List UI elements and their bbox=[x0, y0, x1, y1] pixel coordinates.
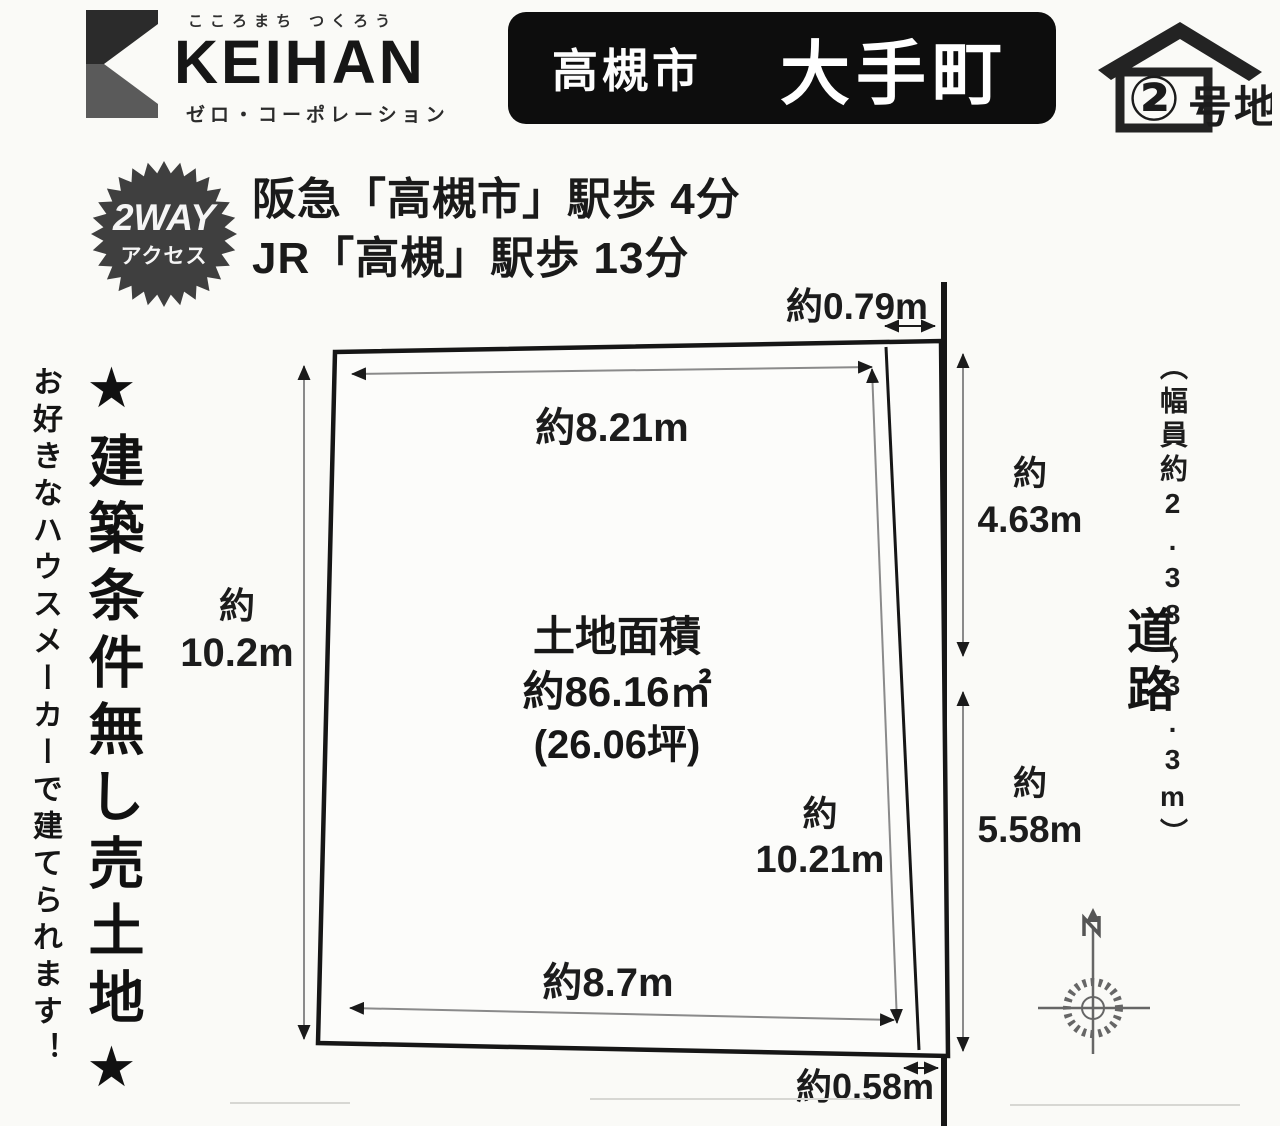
dim-label-right-upper-prefix: 約 bbox=[965, 452, 1095, 496]
scan-artifact bbox=[230, 1102, 350, 1104]
dim-label-right-lower: 約 5.58m bbox=[965, 762, 1095, 854]
land-area-sqm: 約86.16㎡ bbox=[437, 665, 797, 720]
dim-label-right-lower-value: 5.58m bbox=[965, 806, 1095, 854]
land-area-block: 土地面積 約86.16㎡ (26.06坪) bbox=[437, 610, 797, 771]
dim-label-top: 約8.21m bbox=[477, 395, 747, 453]
dim-label-bottom-right: 約0.58m bbox=[765, 1058, 965, 1110]
land-area-title: 土地面積 bbox=[437, 610, 797, 665]
dim-label-inner: 約 10.21m bbox=[735, 793, 905, 884]
land-area-tsubo: (26.06坪) bbox=[437, 719, 797, 771]
dim-label-left-value: 10.2m bbox=[172, 628, 302, 678]
dim-label-inner-prefix: 約 bbox=[735, 793, 905, 837]
scan-artifact bbox=[590, 1098, 870, 1100]
flyer-page: こころまち つくろう KEIHAN ゼロ・コーポレーション 高槻市 大手町 ② … bbox=[0, 0, 1280, 1126]
dim-label-left: 約 10.2m bbox=[172, 583, 302, 678]
compass-icon bbox=[1038, 908, 1150, 1054]
dim-label-bottom: 約8.7m bbox=[483, 950, 733, 1008]
dim-label-right-upper-value: 4.63m bbox=[965, 496, 1095, 544]
scan-artifact bbox=[1010, 1104, 1240, 1106]
dim-label-inner-value: 10.21m bbox=[735, 837, 905, 885]
dim-label-right-upper: 約 4.63m bbox=[965, 452, 1095, 544]
dim-label-right-lower-prefix: 約 bbox=[965, 762, 1095, 806]
dim-label-left-prefix: 約 bbox=[172, 583, 302, 628]
road-width-note: （幅員約2.38〜3.3m） bbox=[1152, 352, 1192, 852]
dim-label-top-right: 約0.79m bbox=[757, 276, 957, 330]
